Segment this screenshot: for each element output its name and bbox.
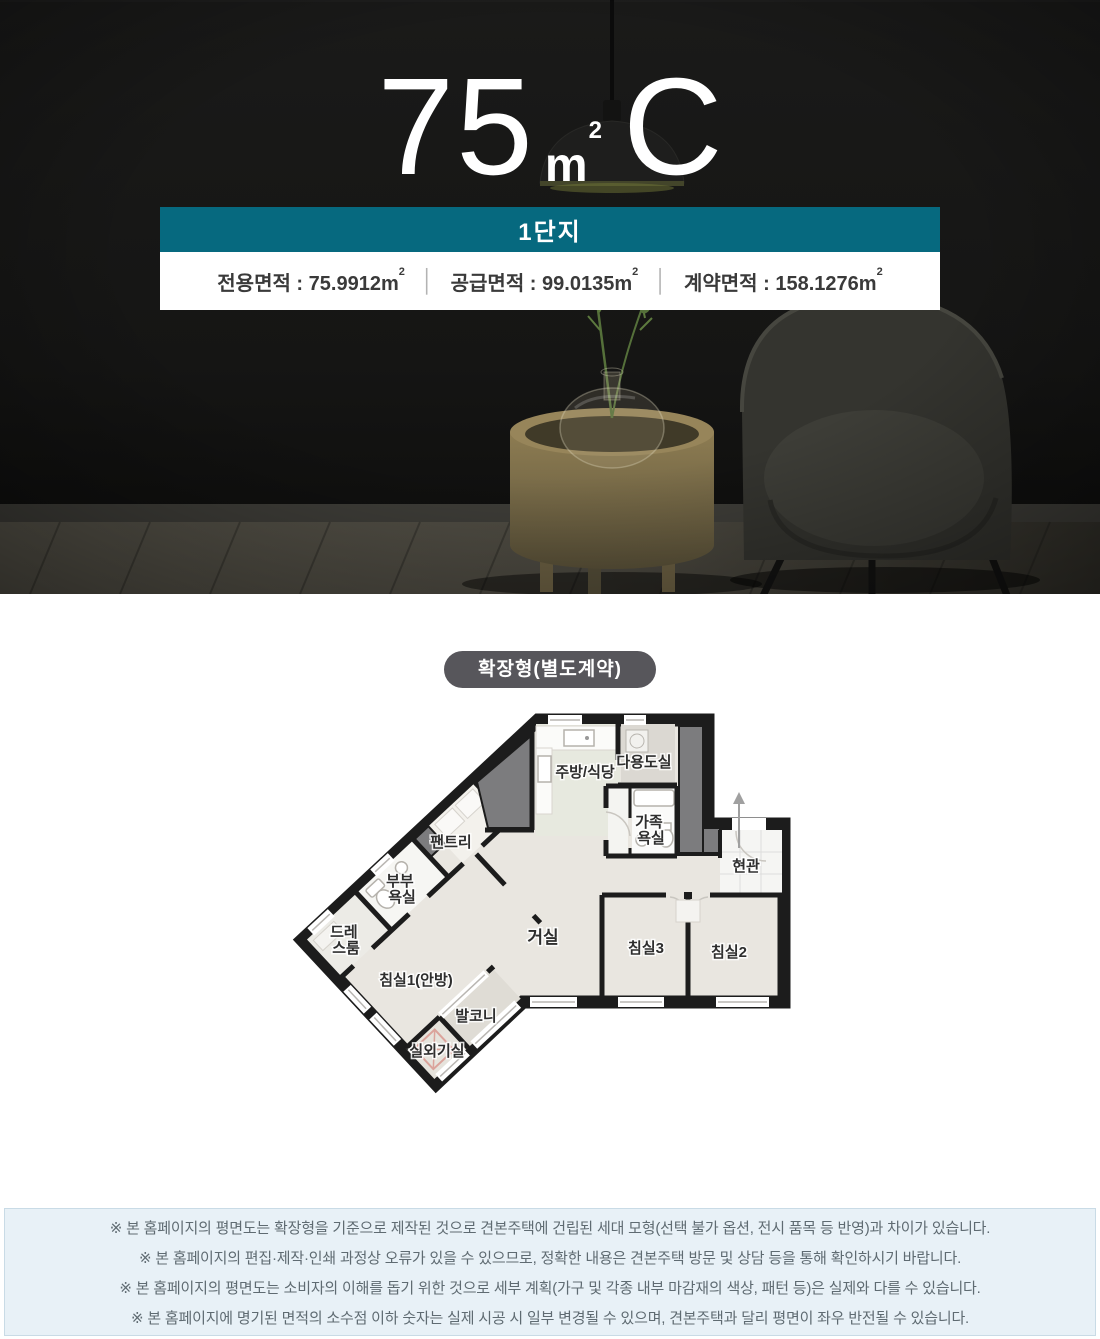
- room-label-bedroom2: 침실2: [711, 944, 747, 961]
- stove-icon: [538, 756, 551, 782]
- disclaimer-line: ※ 본 홈페이지의 평면도는 소비자의 이해를 돕기 위한 것으로 세부 계획(…: [119, 1277, 980, 1298]
- divider: │: [638, 268, 684, 294]
- disclaimer-line: ※ 본 홈페이지에 명기된 면적의 소수점 이하 숫자는 실제 시공 시 일부 …: [131, 1307, 969, 1328]
- room-label-utility: 다용도실: [616, 754, 671, 771]
- divider: │: [405, 268, 451, 294]
- elevator-core: [679, 726, 703, 854]
- room-label-dressroom: 드레 스룸: [330, 924, 362, 957]
- disclaimer-line: ※ 본 홈페이지의 편집·제작·인쇄 과정상 오류가 있을 수 있으므로, 정확…: [139, 1247, 961, 1268]
- floor-plan-section: 확장형(별도계약): [0, 594, 1100, 1115]
- bedroom-closet: [676, 900, 700, 922]
- room-label-entrance: 현관: [732, 858, 760, 875]
- complex-banner: 1단지: [160, 207, 940, 252]
- hero-section: 75 m2 C 1단지 전용면적 : 75.9912m2 │ 공급면적 : 99…: [0, 0, 1100, 594]
- room-label-master-bath: 부부 욕실: [386, 873, 418, 906]
- room-label-living: 거실: [527, 928, 558, 947]
- room-label-balcony: 발코니: [455, 1008, 496, 1025]
- room-label-pantry: 팬트리: [430, 834, 471, 851]
- plan-type-badge: 확장형(별도계약): [444, 651, 656, 688]
- floor-plan: 주방/식당 다용도실 가족 욕실 현관 거실 침실3 침실2 팬트리 부부 욕실…: [280, 690, 820, 1110]
- area-item-supply: 공급면적 : 99.0135m2: [451, 267, 639, 296]
- disclaimer-box: ※ 본 홈페이지의 평면도는 확장형을 기준으로 제작된 것으로 견본주택에 건…: [4, 1208, 1096, 1336]
- area-item-exclusive: 전용면적 : 75.9912m2: [217, 267, 405, 296]
- area-info-panel: 1단지 전용면적 : 75.9912m2 │ 공급면적 : 99.0135m2 …: [160, 207, 940, 310]
- area-info-bar: 전용면적 : 75.9912m2 │ 공급면적 : 99.0135m2 │ 계약…: [160, 252, 940, 310]
- room-label-family-bath: 가족 욕실: [635, 814, 667, 847]
- room-label-bedroom1: 침실1(안방): [379, 971, 453, 989]
- bathtub-icon: [634, 790, 674, 806]
- room-label-bedroom3: 침실3: [628, 940, 664, 957]
- room-label-outdoor-unit: 실외기실: [409, 1042, 464, 1060]
- washer-icon: [626, 730, 648, 752]
- disclaimer-line: ※ 본 홈페이지의 평면도는 확장형을 기준으로 제작된 것으로 견본주택에 건…: [110, 1217, 990, 1238]
- sink-icon: [564, 730, 594, 746]
- area-item-contract: 계약면적 : 158.1276m2: [684, 267, 883, 296]
- room-label-kitchen: 주방/식당: [555, 763, 615, 781]
